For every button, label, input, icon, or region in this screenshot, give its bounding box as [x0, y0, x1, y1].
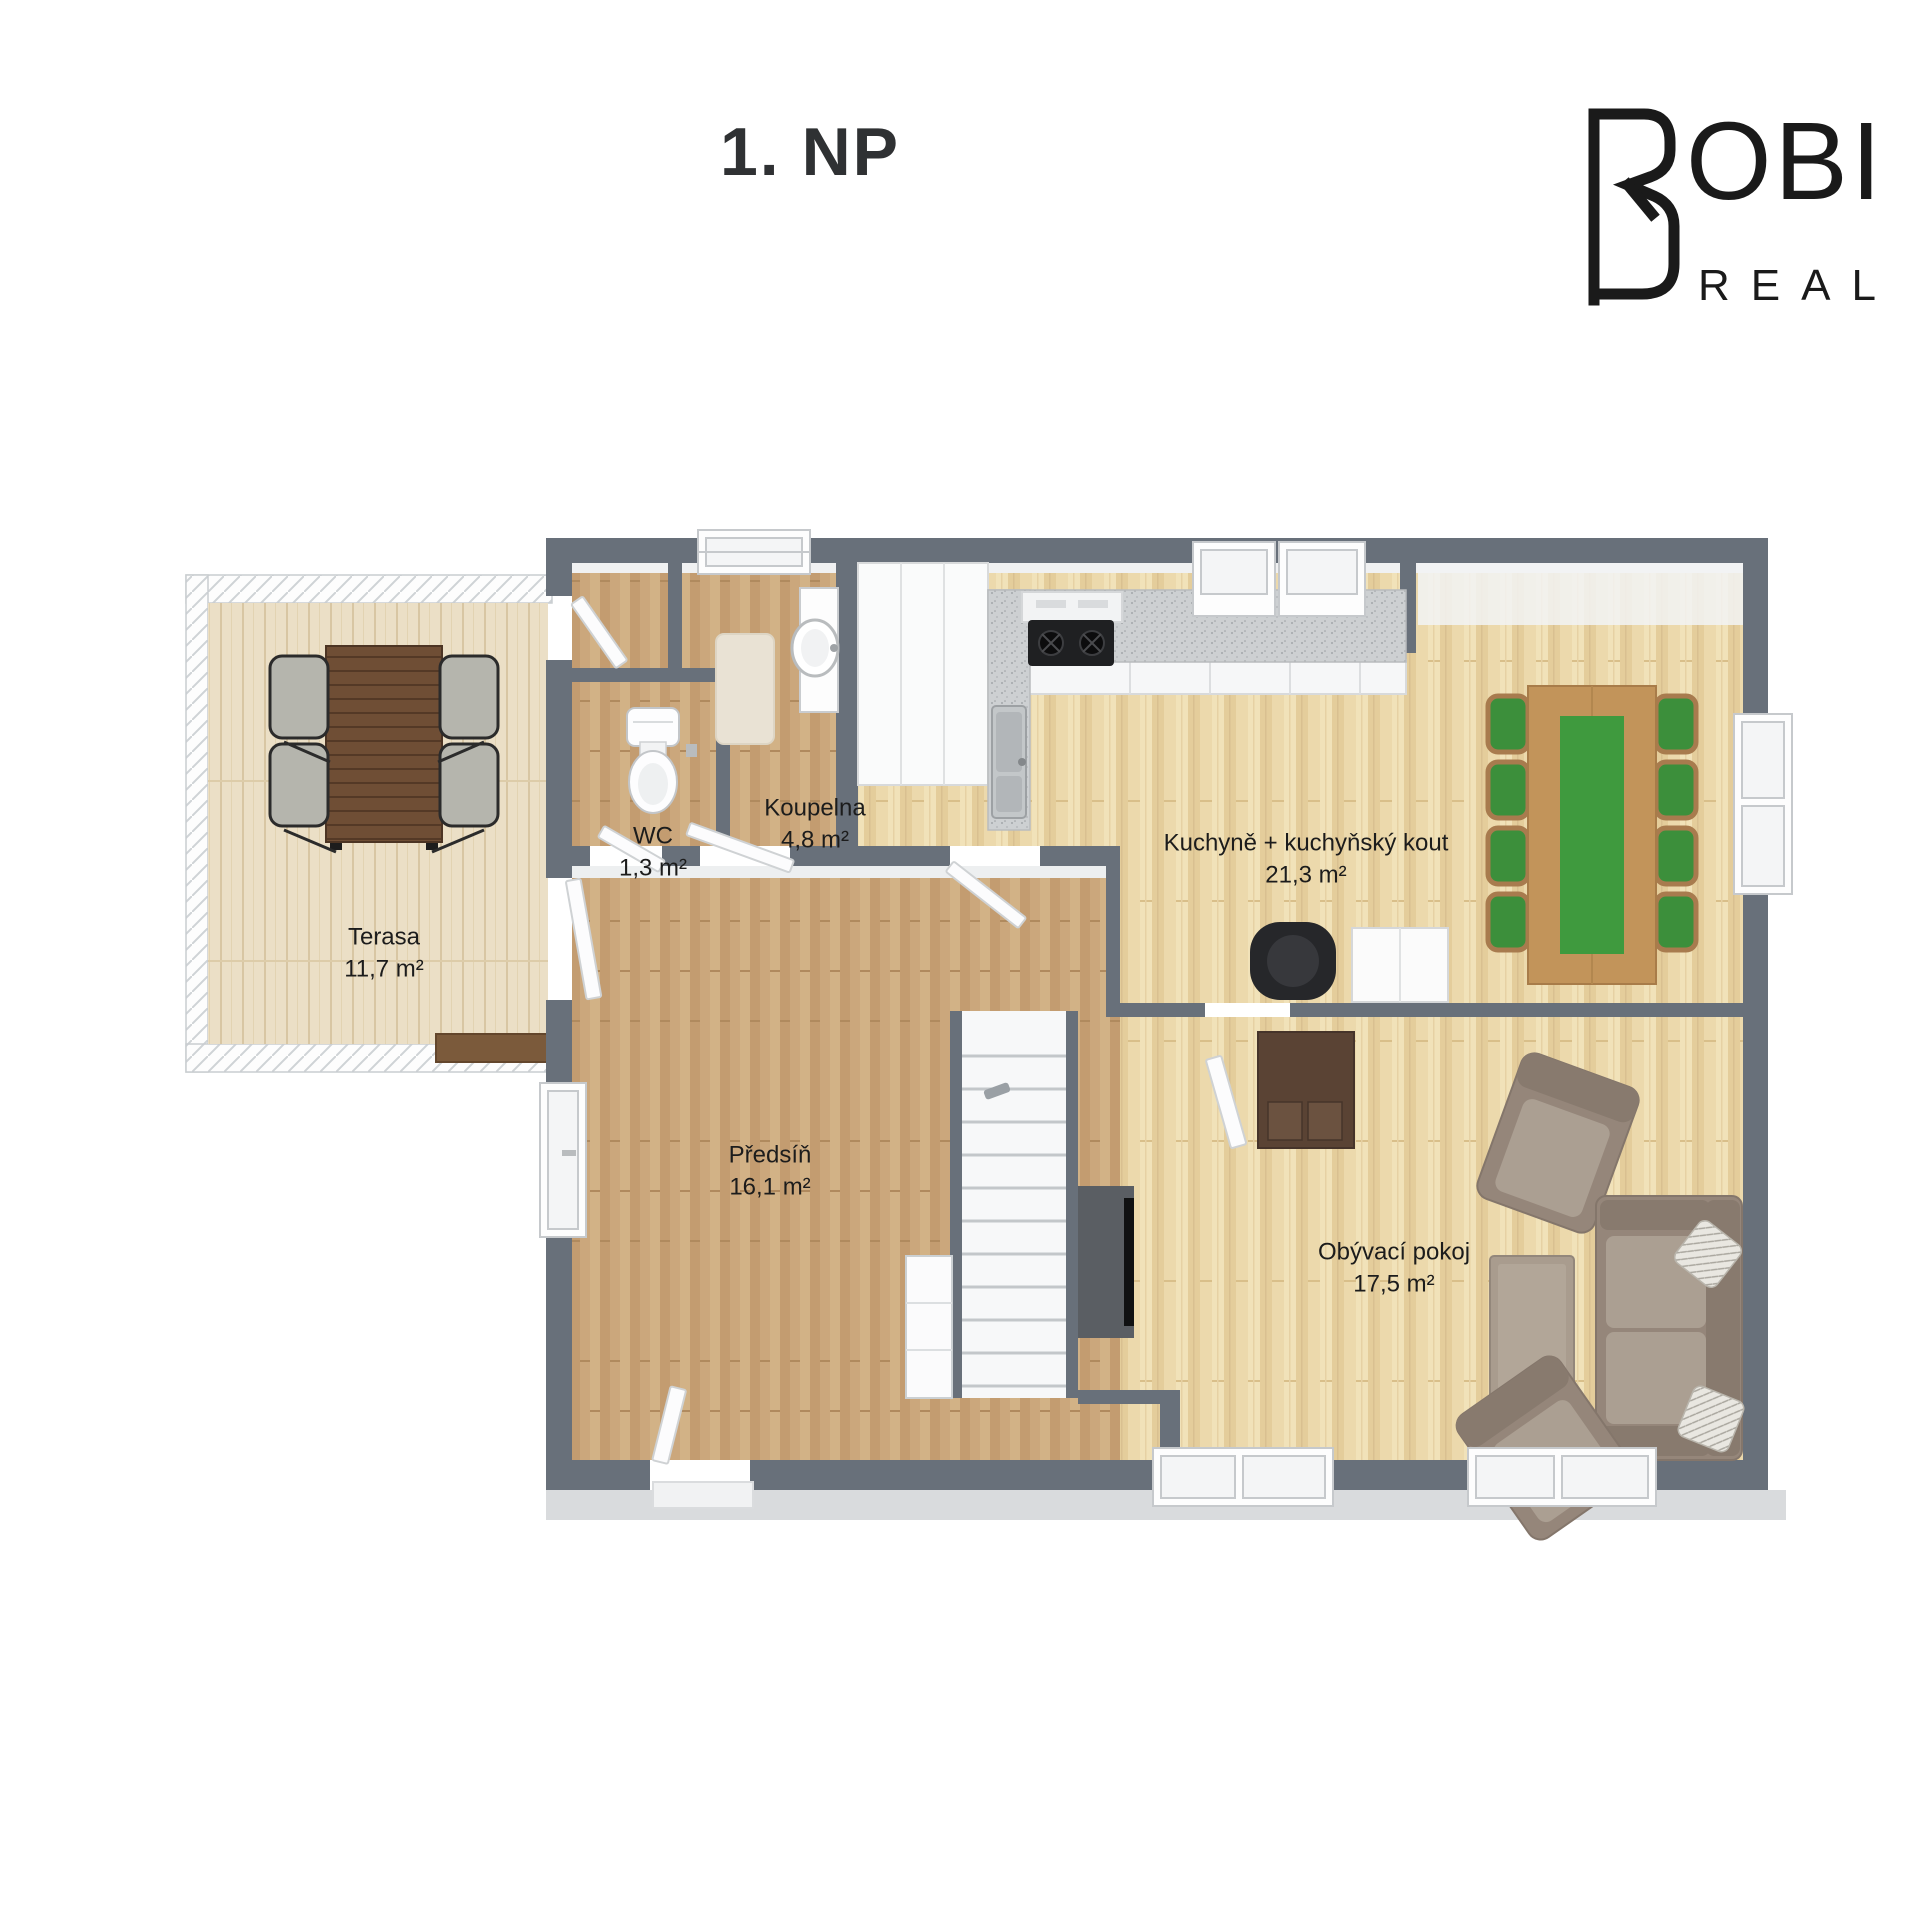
- floorplan-drawing: [0, 0, 1920, 1920]
- wall-hall-kitchen-vertical: [1106, 846, 1120, 1017]
- terrace-bench: [436, 1034, 548, 1062]
- entrance-threshold: [653, 1482, 753, 1508]
- terrace-table: [326, 646, 442, 850]
- room-area: 11,7 m²: [344, 953, 424, 985]
- wall-bath-bottom-1: [572, 846, 590, 866]
- window-dining-right: [1734, 714, 1792, 894]
- wall-right: [1743, 538, 1768, 1490]
- stove: [1028, 620, 1114, 666]
- hall-closet: [906, 1256, 952, 1398]
- wall-left-a: [546, 538, 572, 596]
- kitchen-tall-cabinet: [858, 563, 988, 785]
- room-label-terasa: Terasa11,7 m²: [344, 921, 424, 984]
- desk: [1258, 1032, 1354, 1148]
- wall-left-c: [546, 1000, 572, 1490]
- room-name: Kuchyně + kuchyňský kout: [1164, 827, 1449, 859]
- window-bathroom-top: [698, 530, 810, 574]
- kitchen-sink: [992, 706, 1026, 818]
- window-living-bottom-2: [1468, 1448, 1656, 1506]
- room-name: Koupelna: [764, 792, 865, 824]
- room-label-koupelna: Koupelna4,8 m²: [764, 792, 865, 855]
- table-runner: [1560, 716, 1624, 954]
- wall-wc-top: [572, 668, 730, 682]
- floorplan-page: 1. NP OBI REAL: [0, 0, 1920, 1920]
- window-kitchen-2: [1279, 542, 1365, 616]
- dining-set: [1488, 686, 1696, 984]
- wall-living-top-2: [1290, 1003, 1743, 1017]
- window-kitchen-1: [1193, 542, 1275, 616]
- room-label-predsin: Předsíň16,1 m²: [729, 1139, 812, 1202]
- tv-unit: [1078, 1186, 1134, 1338]
- toilet-paper-holder: [686, 744, 697, 757]
- dining-table: [1528, 686, 1656, 984]
- room-name: Obývací pokoj: [1318, 1236, 1470, 1268]
- room-area: 1,3 m²: [619, 852, 687, 884]
- room-area: 17,5 m²: [1318, 1268, 1470, 1300]
- wall-stairs-right: [1066, 1011, 1078, 1398]
- room-name: Předsíň: [729, 1139, 812, 1171]
- bath-rug: [716, 634, 774, 744]
- window-hallway-left: [540, 1083, 586, 1237]
- room-label-obyvaci: Obývací pokoj17,5 m²: [1318, 1236, 1470, 1299]
- room-name: Terasa: [344, 921, 424, 953]
- wall-entry-divider: [668, 563, 682, 668]
- toilet: [627, 708, 679, 813]
- wall-left-b: [546, 660, 572, 878]
- window-living-bottom-1: [1153, 1448, 1333, 1506]
- room-name: WC: [619, 820, 687, 852]
- wall-inner-face-topright: [1418, 563, 1743, 625]
- wall-living-top-1: [1120, 1003, 1205, 1017]
- terrace: [186, 575, 552, 1072]
- terrace-railing-top: [186, 575, 552, 603]
- room-area: 21,3 m²: [1164, 859, 1449, 891]
- room-label-kuchyne: Kuchyně + kuchyňský kout21,3 m²: [1164, 827, 1449, 890]
- room-area: 4,8 m²: [764, 824, 865, 856]
- room-area: 16,1 m²: [729, 1171, 812, 1203]
- sofa: [1596, 1196, 1746, 1460]
- room-label-wc: WC1,3 m²: [619, 820, 687, 883]
- terrace-railing-left: [186, 575, 208, 1072]
